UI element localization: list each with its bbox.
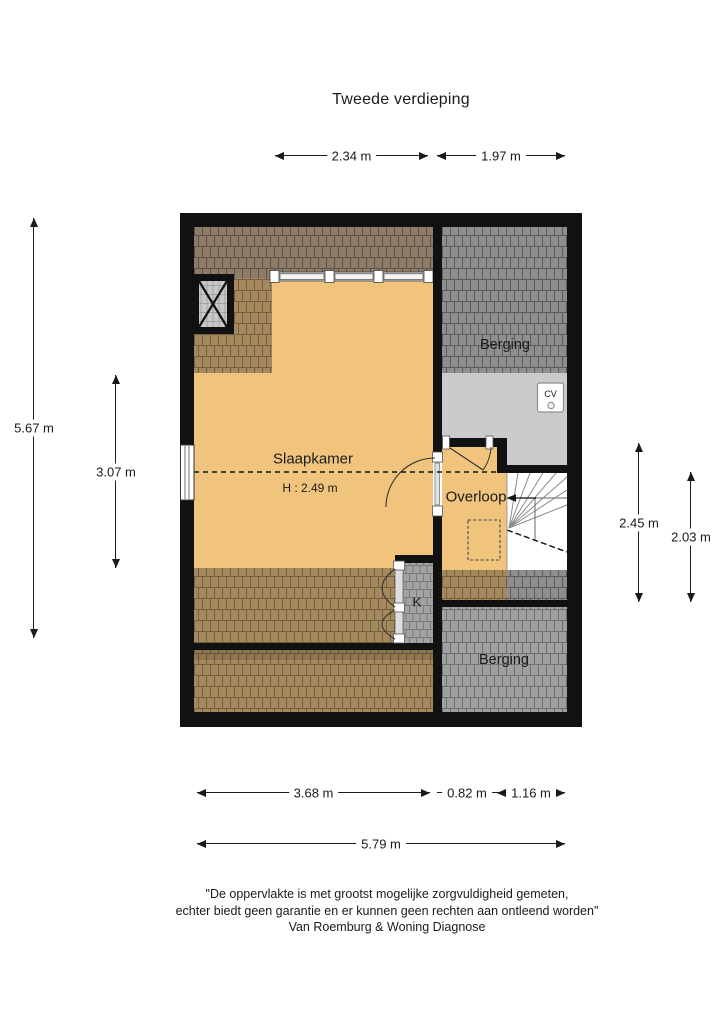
door-leaf (435, 463, 440, 505)
dimension-top-width-1: 2.34 m (275, 155, 428, 156)
footer-line-1: "De oppervlakte is met grootst mogelijke… (50, 886, 724, 903)
dimension-label: 5.79 m (356, 837, 406, 852)
room-label-slaapkamer: Slaapkamer (273, 451, 353, 468)
page-title: Tweede verdieping (332, 91, 470, 109)
room-label-overloop: Overloop (446, 489, 507, 506)
dimension-label: 2.34 m (327, 149, 377, 164)
cv-dial (548, 402, 554, 408)
dimension-label: 3.68 m (289, 786, 339, 801)
door-post (433, 506, 443, 516)
room-label-closet: K (413, 595, 422, 610)
dimension-bottom-width-2: 0.82 m (437, 792, 497, 793)
dimension-label: 2.45 m (615, 514, 663, 531)
dimension-right-height-1: 2.45 m (638, 443, 639, 602)
room-label-ceiling-height: H : 2.49 m (282, 481, 337, 495)
dimension-left-height-room: 3.07 m (115, 375, 116, 568)
floor-plan: Slaapkamer H : 2.49 m Berging Overloop K… (180, 213, 582, 727)
dimension-label: 1.16 m (506, 786, 556, 801)
staircase (507, 473, 567, 570)
dimension-right-height-2: 2.03 m (690, 472, 691, 602)
door-post (394, 603, 405, 612)
room-label-berging-top: Berging (480, 337, 530, 353)
floorplan-page: Tweede verdieping 2.34 m 1.97 m 5.67 m 3… (0, 0, 724, 1024)
footer-disclaimer: "De oppervlakte is met grootst mogelijke… (50, 886, 724, 936)
footer-line-3: Van Roemburg & Woning Diagnose (50, 919, 724, 936)
left-wall-window (181, 445, 195, 500)
floor-plan-drawing (180, 213, 582, 727)
door-post (394, 561, 405, 570)
dimension-label: 1.97 m (476, 149, 526, 164)
footer-line-2: echter biedt geen garantie en er kunnen … (50, 903, 724, 920)
dormer-window-row (270, 271, 433, 283)
dimension-bottom-width-1: 3.68 m (197, 792, 430, 793)
eaves-band-overloop (442, 570, 507, 600)
dimension-top-width-2: 1.97 m (437, 155, 565, 156)
door-post (443, 436, 450, 449)
wall (433, 600, 567, 607)
door-post (433, 452, 443, 462)
dimension-label: 3.07 m (92, 463, 140, 480)
room-label-cv: CV (544, 389, 557, 399)
dimension-label: 2.03 m (667, 529, 715, 546)
shaft (192, 274, 234, 334)
eaves-band-stairs (507, 570, 567, 600)
dimension-label: 5.67 m (10, 420, 58, 437)
dimension-bottom-width-3: 1.16 m (497, 792, 565, 793)
dimension-label: 0.82 m (442, 786, 492, 801)
room-label-berging-bottom: Berging (479, 652, 529, 668)
dimension-left-height-total: 5.67 m (33, 218, 34, 638)
door-post (486, 436, 493, 449)
dimension-bottom-width-total: 5.79 m (197, 843, 565, 844)
